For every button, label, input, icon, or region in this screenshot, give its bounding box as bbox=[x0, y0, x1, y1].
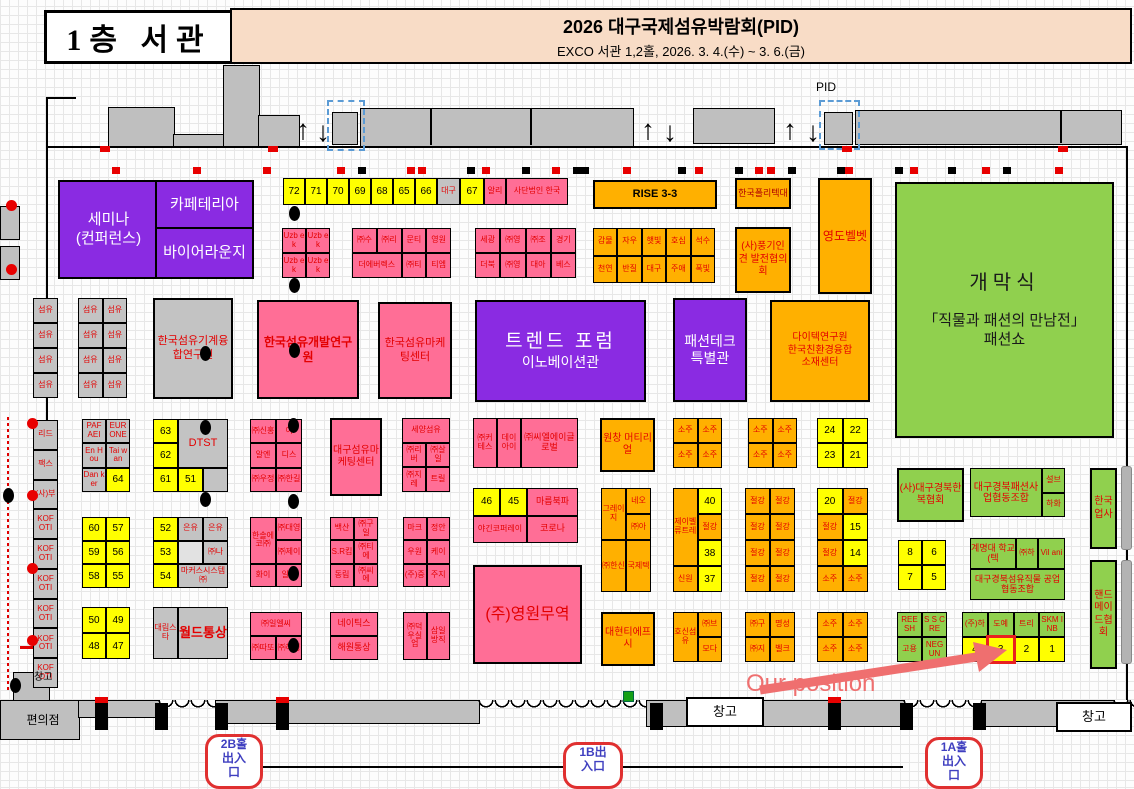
booth: Uzb ek bbox=[306, 228, 330, 253]
booth: 45 bbox=[500, 488, 527, 516]
event-subtitle: EXCO 서관 1,2홀, 2026. 3. 4.(수) ~ 3. 6.(금) bbox=[557, 41, 805, 60]
tick-marker bbox=[788, 167, 796, 174]
building-block bbox=[824, 112, 853, 145]
booth: 68 bbox=[371, 178, 393, 205]
label: 대현티에프시 bbox=[603, 627, 653, 652]
seminar-label: 세미나 (컨퍼런스) bbox=[76, 211, 141, 249]
tick-marker bbox=[678, 167, 686, 174]
booth: 49 bbox=[106, 607, 130, 633]
booth: 사단법인 한국 bbox=[506, 178, 568, 205]
red-tick bbox=[100, 146, 110, 152]
warehouse-label: 창고 bbox=[713, 704, 737, 720]
booth-group: 소주소주소주소주 bbox=[673, 418, 722, 468]
booth: 섬유 bbox=[33, 298, 58, 323]
booth: (주)중 bbox=[403, 564, 427, 587]
booth: 소주 bbox=[817, 612, 843, 637]
booth: 베스 bbox=[551, 253, 576, 278]
booth: ㈜제이 bbox=[276, 540, 302, 563]
booth: 섬유 bbox=[78, 298, 103, 323]
tick-marker bbox=[845, 167, 853, 174]
booth: 감물 bbox=[593, 228, 617, 256]
booth: 40 bbox=[698, 488, 723, 514]
booth: S.R킴 bbox=[330, 540, 354, 563]
booth-group-dtst: 63DTST626151 bbox=[153, 419, 228, 492]
wall-bottom bbox=[78, 700, 160, 718]
label: 영도벨벳 bbox=[823, 229, 867, 244]
booth: 네오 bbox=[626, 488, 651, 514]
booth: 8 bbox=[898, 540, 922, 565]
booth: 57 bbox=[106, 517, 130, 541]
booth: 소주 bbox=[748, 418, 773, 443]
label: 다이텍연구원 한국친환경융합 소재센터 bbox=[788, 332, 852, 370]
booth: 절강 bbox=[745, 514, 770, 540]
rise-banner: RISE 3-3 bbox=[593, 180, 717, 209]
booth: 섬유 bbox=[103, 323, 128, 348]
buyer-lounge: 바이어라운지 bbox=[155, 227, 254, 279]
pillar bbox=[3, 488, 14, 503]
booth: Uzb ek bbox=[282, 253, 306, 278]
booth: 알엔 bbox=[250, 443, 276, 467]
pillar bbox=[288, 418, 299, 433]
booth: 팩스 bbox=[33, 450, 58, 480]
booth: ㈜따또 bbox=[250, 636, 276, 660]
booth: 52 bbox=[153, 517, 178, 541]
red-dot bbox=[6, 200, 17, 211]
booth: 51 bbox=[178, 468, 203, 492]
label: 원창 머티리얼 bbox=[602, 433, 653, 458]
booth: 54 bbox=[153, 564, 178, 588]
booth: 66 bbox=[415, 178, 437, 205]
booth: 섬유 bbox=[103, 348, 128, 373]
booth-group: ㈜커테스데이아이㈜씨엘에이글로벌 bbox=[473, 418, 578, 468]
booth: 화이 bbox=[250, 564, 276, 587]
booth: 폭빛 bbox=[691, 256, 715, 284]
tick-marker bbox=[522, 167, 530, 174]
booth bbox=[178, 541, 203, 565]
booth: PAF AEI bbox=[82, 419, 106, 443]
booth-group: 제이벨류트레40절강38신원37 bbox=[673, 488, 722, 592]
booth-group: 대림스타월드통상 bbox=[153, 607, 228, 659]
booth: 데이아이 bbox=[497, 418, 521, 468]
booth: 섬유 bbox=[103, 298, 128, 323]
booth: ㈜티 bbox=[402, 253, 427, 278]
booth: 23 bbox=[817, 443, 843, 468]
opening-sub: 「직물과 패션의 만남전」 패션쇼 bbox=[923, 312, 1086, 350]
booth: ㈜구 bbox=[745, 612, 770, 637]
booth: KOF OTI bbox=[33, 599, 58, 629]
booth: ㈜리 bbox=[377, 228, 402, 253]
booth: SKM INB bbox=[1039, 612, 1065, 637]
booth: 64 bbox=[106, 468, 130, 492]
buyer-lounge-label: 바이어라운지 bbox=[163, 244, 246, 263]
booth: 신원 bbox=[673, 566, 698, 592]
booth: 섬유 bbox=[78, 323, 103, 348]
booth: 섬유 bbox=[78, 373, 103, 398]
booth: S S CRE bbox=[922, 612, 947, 637]
tick-marker bbox=[552, 167, 560, 174]
booth: 소주 bbox=[843, 612, 869, 637]
booth: 소주 bbox=[698, 443, 723, 468]
booth: 더북 bbox=[475, 253, 500, 278]
booth: ㈜리버 bbox=[402, 443, 426, 468]
tick-marker bbox=[1055, 167, 1063, 174]
booth: 37 bbox=[698, 566, 723, 592]
booth: 62 bbox=[153, 443, 178, 467]
booth: 22 bbox=[843, 418, 869, 443]
daehyun-booth: 대현티에프시 bbox=[601, 612, 655, 666]
booth: 모다 bbox=[698, 637, 723, 662]
booth: 24 bbox=[817, 418, 843, 443]
red-dot bbox=[27, 635, 38, 646]
booth: 설브 bbox=[1042, 468, 1065, 493]
red-dot bbox=[27, 490, 38, 501]
stairs-up-arrow: ↑ bbox=[641, 116, 655, 144]
booth: 58 bbox=[82, 564, 106, 588]
red-dot bbox=[27, 418, 38, 429]
seminar-hall: 세미나 (컨퍼런스) bbox=[58, 180, 159, 279]
event-title-box: 2026 대구국제섬유박람회(PID) EXCO 서관 1,2홀, 2026. … bbox=[230, 8, 1132, 64]
booth: 71 bbox=[305, 178, 327, 205]
red-tick bbox=[95, 697, 108, 703]
booth: 주애 bbox=[666, 256, 690, 284]
tick-marker bbox=[112, 167, 120, 174]
stairs-down-arrow: ↓ bbox=[806, 118, 820, 146]
booth: 5 bbox=[922, 565, 946, 590]
booth-group: ㈜수㈜리문티영원더에버렉스㈜티티엠 bbox=[352, 228, 451, 278]
booth: 56 bbox=[106, 541, 130, 565]
booth: 월드통상 bbox=[178, 607, 228, 659]
tick-marker bbox=[910, 167, 918, 174]
booth: 은유 bbox=[203, 517, 228, 541]
booth: 제이벨류트레 bbox=[673, 488, 698, 566]
building-block bbox=[855, 110, 1122, 145]
booth: 야긴코퍼레이 bbox=[473, 516, 527, 544]
booth: (주)하 bbox=[962, 612, 988, 637]
booth: 절강 bbox=[817, 514, 843, 540]
booth: 섬유 bbox=[33, 323, 58, 348]
booth: 소주 bbox=[773, 443, 798, 468]
booth: 대구경북패션사업협동조합 bbox=[970, 468, 1042, 517]
booth bbox=[203, 468, 228, 492]
booth: 소주 bbox=[748, 443, 773, 468]
entrance-1a: 1A홀 出入 口 bbox=[925, 737, 983, 789]
pillar bbox=[900, 703, 913, 730]
booth-group: ㈜덕우실업삼일방직 bbox=[403, 612, 450, 660]
cafeteria-label: 카페테리아 bbox=[170, 196, 239, 215]
label: 한국폴리텍대 bbox=[738, 188, 788, 199]
tick-marker bbox=[573, 167, 581, 174]
booth: 소주 bbox=[698, 418, 723, 443]
tick-marker bbox=[837, 167, 845, 174]
booth: ㈜브 bbox=[698, 612, 723, 637]
label: RISE 3-3 bbox=[633, 188, 678, 202]
building-block bbox=[360, 108, 634, 147]
pillar bbox=[95, 703, 108, 730]
booth: EUR ONE bbox=[106, 419, 130, 443]
hanbok-assoc-booth: (사)대구경북한복협회 bbox=[897, 468, 964, 522]
booth-group: 4645마름북파야긴코퍼레이코로나 bbox=[473, 488, 578, 543]
tick-marker bbox=[193, 167, 201, 174]
wall-segment bbox=[1121, 560, 1132, 664]
booth: 절강 bbox=[770, 540, 795, 566]
textile-marketing-center: 한국섬유마케팅센터 bbox=[378, 302, 452, 399]
building-block bbox=[693, 108, 775, 144]
red-tick bbox=[268, 146, 278, 152]
booth: 코로나 bbox=[527, 516, 578, 544]
booth-group: 8675 bbox=[898, 540, 946, 590]
label: 한국섬유마케팅센터 bbox=[380, 337, 450, 365]
booth: 대구 bbox=[642, 256, 666, 284]
pillar bbox=[155, 703, 168, 730]
pillar bbox=[200, 420, 211, 435]
booth: Uzb ek bbox=[306, 253, 330, 278]
tick-marker bbox=[358, 167, 366, 174]
booth-group: 세광㈜영㈜조경기더북㈜영대아베스 bbox=[475, 228, 576, 278]
booth: 명성 bbox=[770, 612, 795, 637]
tick-marker bbox=[482, 167, 490, 174]
booth: ㈜살일 bbox=[426, 443, 450, 468]
wall-divider bbox=[530, 108, 532, 145]
booth: ㈜수 bbox=[352, 228, 377, 253]
pillar bbox=[828, 703, 841, 730]
trend-sub: 이노베이션관 bbox=[522, 354, 599, 372]
booth: 절강 bbox=[745, 488, 770, 514]
booth-group-uzbek: Uzb ekUzb ekUzb ekUzb ek bbox=[282, 228, 330, 278]
trend-forum-hall: 트렌드 포럼 이노베이션관 bbox=[475, 300, 646, 402]
stairs-up-arrow: ↑ bbox=[296, 116, 310, 144]
booth: 경기 bbox=[551, 228, 576, 253]
booth: 은유 bbox=[178, 517, 203, 541]
booth: 70 bbox=[327, 178, 349, 205]
label: (사)풍기인견 발전협의회 bbox=[737, 241, 789, 279]
booth: ㈜신홍 bbox=[250, 419, 276, 443]
tick-marker bbox=[982, 167, 990, 174]
label: 핸드메이드협회 bbox=[1092, 590, 1115, 640]
booth: 네이틱스 bbox=[330, 612, 378, 636]
wall-segment bbox=[1121, 466, 1132, 550]
booth: 67 bbox=[460, 178, 484, 205]
booth: 소주 bbox=[673, 443, 698, 468]
booth-group: 계명대 학교(텍㈜하Vil ani대구경북섬유직물 공업협동조합 bbox=[970, 538, 1065, 600]
booth: 65 bbox=[393, 178, 415, 205]
label: 한국섬유개발연구원 bbox=[259, 335, 357, 365]
booth: 하화 bbox=[1042, 493, 1065, 518]
booth: Uzb ek bbox=[282, 228, 306, 253]
booth: ㈜대영 bbox=[276, 517, 302, 540]
booth: 우원 bbox=[403, 540, 427, 563]
pillar bbox=[10, 678, 21, 693]
tick-marker bbox=[735, 167, 743, 174]
booth: 69 bbox=[349, 178, 371, 205]
stairs-down-arrow: ↓ bbox=[663, 118, 677, 146]
label: (주)영원무역 bbox=[485, 605, 569, 625]
wall-line bbox=[46, 97, 76, 99]
booth: 섬유 bbox=[78, 348, 103, 373]
booth-group: 20절강절강15절강14소주소주 bbox=[817, 488, 868, 592]
red-tick bbox=[1058, 146, 1068, 152]
booth: 2 bbox=[1014, 637, 1040, 662]
polytech-booth: 한국폴리텍대 bbox=[735, 178, 791, 209]
booth: 60 bbox=[82, 517, 106, 541]
label: 한국업사 bbox=[1092, 496, 1115, 521]
textile-machinery-institute: 한국섬유기계융합연구원 bbox=[153, 298, 233, 399]
booth: 72 bbox=[283, 178, 305, 205]
booth: 절강 bbox=[745, 566, 770, 592]
convenience-store-label: 편의점 bbox=[8, 711, 78, 728]
booth: 계명대 학교(텍 bbox=[970, 538, 1016, 569]
tick-marker bbox=[623, 167, 631, 174]
booth: 섬유 bbox=[33, 348, 58, 373]
booth: ㈜영 bbox=[500, 253, 525, 278]
red-tick bbox=[276, 697, 289, 703]
booth: ㈜한신 bbox=[601, 540, 626, 592]
booth: 트리 bbox=[1014, 612, 1040, 637]
booth-group-kofoti: 리드팩스(사)부KOF OTIKOF OTIKOF OTIKOF OTIKOF … bbox=[33, 420, 58, 688]
booth: 대아 bbox=[526, 253, 551, 278]
pillar bbox=[200, 492, 211, 507]
stairs-up-arrow: ↑ bbox=[783, 116, 797, 144]
booth: 47 bbox=[106, 633, 130, 659]
booth: 대림스타 bbox=[153, 607, 178, 659]
booth: ㈜씨엘에이글로벌 bbox=[521, 418, 578, 468]
booth: 세양섬유 bbox=[402, 418, 450, 443]
tick-marker bbox=[418, 167, 426, 174]
trend-title: 트렌드 포럼 bbox=[505, 330, 616, 354]
booth: REE SH bbox=[897, 612, 922, 637]
building-block bbox=[332, 112, 358, 145]
wall-divider bbox=[1060, 110, 1062, 143]
booth: 소주 bbox=[673, 418, 698, 443]
building-block bbox=[108, 107, 175, 147]
label: (사)대구경북한복협회 bbox=[899, 483, 962, 508]
booth: ㈜지레 bbox=[402, 467, 426, 492]
booth: 문티 bbox=[402, 228, 427, 253]
booth: ㈜씨에 bbox=[354, 564, 378, 587]
building-block bbox=[258, 115, 300, 147]
pillar bbox=[288, 566, 299, 581]
pillar bbox=[288, 638, 299, 653]
booth: 마름북파 bbox=[527, 488, 578, 516]
booth: 정안 bbox=[427, 517, 451, 540]
booth: 천연 bbox=[593, 256, 617, 284]
warehouse-box: 창고 bbox=[1056, 702, 1132, 732]
booth: ㈜영 bbox=[500, 228, 525, 253]
opening-title: 개막식 bbox=[969, 271, 1039, 296]
booth: ㈜조 bbox=[526, 228, 551, 253]
booth: 백산 bbox=[330, 517, 354, 540]
booth: 절강 bbox=[698, 514, 723, 540]
booth-group: 감물자우햇빛호심석수천연반질대구주애폭빛 bbox=[593, 228, 715, 283]
booth: ㈜나 bbox=[203, 541, 228, 565]
booth-group: 호신섬유㈜브모다 bbox=[673, 612, 722, 662]
tick-marker bbox=[895, 167, 903, 174]
booth: 48 bbox=[82, 633, 106, 659]
booth: 소주 bbox=[843, 566, 869, 592]
red-dot bbox=[27, 563, 38, 574]
booth: 석수 bbox=[691, 228, 715, 256]
pillar bbox=[288, 494, 299, 509]
booth: 절강 bbox=[770, 514, 795, 540]
booth: 섬유 bbox=[33, 373, 58, 398]
booth: 20 bbox=[817, 488, 843, 514]
booth: 케이 bbox=[427, 540, 451, 563]
booth: 그레이지 bbox=[601, 488, 626, 540]
warehouse-box: 창고 bbox=[686, 697, 764, 727]
booth: 반질 bbox=[617, 256, 641, 284]
booth-group: 섬유섬유섬유섬유섬유섬유섬유섬유 bbox=[78, 298, 127, 398]
upcycle-assoc-booth: 한국업사 bbox=[1090, 468, 1117, 549]
tick-marker bbox=[767, 167, 775, 174]
tick-marker bbox=[467, 167, 475, 174]
pillar bbox=[289, 206, 300, 221]
booth: 자우 bbox=[617, 228, 641, 256]
booth: 55 bbox=[106, 564, 130, 588]
booth: ㈜하 bbox=[1016, 538, 1038, 569]
booth: 대구경북섬유직물 공업협동조합 bbox=[970, 569, 1065, 600]
booth-group: 마크정안우원케이(주)중주지 bbox=[403, 517, 450, 587]
dyetec-institute: 다이텍연구원 한국친환경융합 소재센터 bbox=[770, 300, 870, 402]
tick-marker bbox=[407, 167, 415, 174]
booth-group: 소주소주소주소주 bbox=[748, 418, 797, 468]
booth: ㈜아 bbox=[626, 514, 651, 540]
booth: 63 bbox=[153, 419, 178, 443]
booth: 38 bbox=[698, 540, 723, 566]
label: 대구섬유마케팅센터 bbox=[332, 445, 380, 470]
booth: 호신섬유 bbox=[673, 612, 698, 662]
booth: 소주 bbox=[817, 566, 843, 592]
tick-marker bbox=[948, 167, 956, 174]
booth-group: 절강절강절강절강절강절강절강절강 bbox=[745, 488, 795, 592]
booth: 절강 bbox=[843, 488, 869, 514]
door-scallop bbox=[903, 700, 981, 711]
booth: ㈜일엘씨 bbox=[250, 612, 302, 636]
pillar bbox=[289, 278, 300, 293]
booth: Vil ani bbox=[1038, 538, 1065, 569]
yeongdo-velvet-booth: 영도벨벳 bbox=[818, 178, 872, 294]
booth: 영원 bbox=[426, 228, 451, 253]
booth: ㈜우정 bbox=[250, 468, 276, 492]
booth: 1 bbox=[1039, 637, 1065, 662]
daegu-marketing-booth: 대구섬유마케팅센터 bbox=[330, 418, 382, 496]
booth: 절강 bbox=[817, 540, 843, 566]
booth: 마크 bbox=[403, 517, 427, 540]
booth: 섬유 bbox=[103, 373, 128, 398]
position-arrow bbox=[755, 638, 1017, 700]
punggi-assoc-booth: (사)풍기인견 발전협의회 bbox=[735, 227, 791, 293]
wall-bottom bbox=[646, 700, 905, 727]
booth: 세광 bbox=[475, 228, 500, 253]
booth: ㈜커테스 bbox=[473, 418, 497, 468]
booth: ㈜구일 bbox=[354, 517, 378, 540]
green-marker bbox=[623, 691, 634, 702]
booth: 소주 bbox=[773, 418, 798, 443]
tick-marker bbox=[695, 167, 703, 174]
tick-marker bbox=[337, 167, 345, 174]
booth: 트릴 bbox=[426, 467, 450, 492]
label: 패션테크 특별관 bbox=[684, 333, 736, 368]
wonchang-booth: 원창 머티리얼 bbox=[600, 418, 655, 472]
booth: 대구 bbox=[437, 178, 460, 205]
booth: ㈜티에 bbox=[354, 540, 378, 563]
floor-title: 1층 서관 bbox=[44, 10, 234, 64]
cafeteria-hall: 카페테리아 bbox=[155, 180, 254, 231]
booth: 알리 bbox=[484, 178, 506, 205]
tick-marker bbox=[1003, 167, 1011, 174]
booth: 53 bbox=[153, 541, 178, 565]
booth: 한솔에코㈜ bbox=[250, 517, 276, 564]
booth: 절강 bbox=[745, 540, 770, 566]
booth: 국제텍 bbox=[626, 540, 651, 592]
